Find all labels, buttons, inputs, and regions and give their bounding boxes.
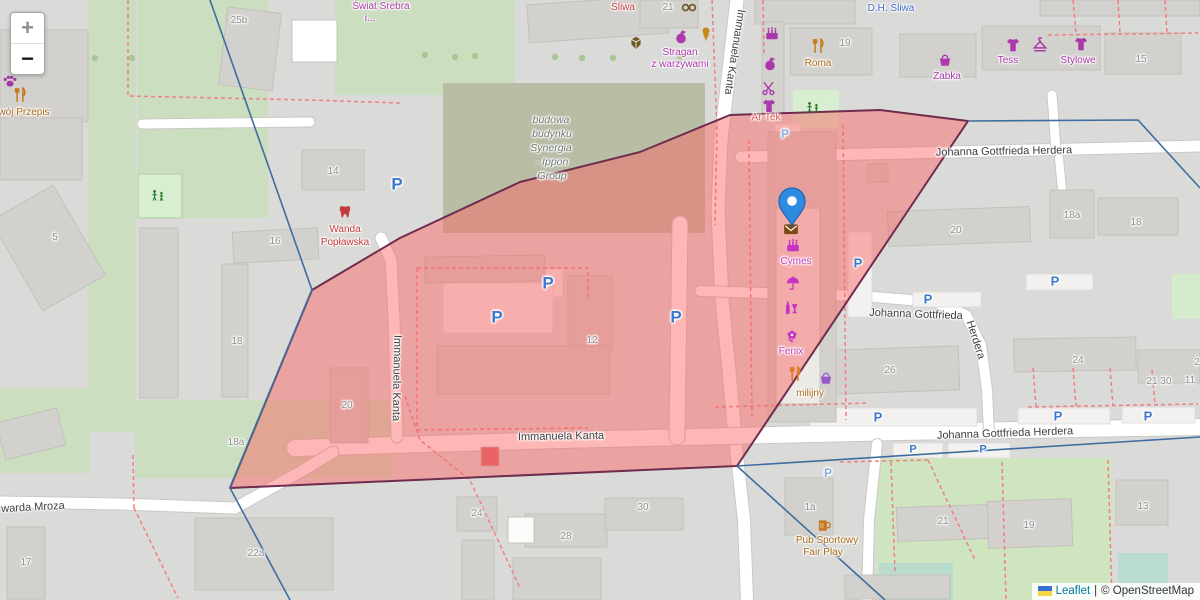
attribution-separator: | (1094, 585, 1097, 597)
tree (422, 52, 428, 58)
tree (472, 53, 478, 59)
road (142, 122, 310, 124)
parking-area (913, 292, 981, 307)
building (1040, 0, 1200, 16)
openstreetmap-link[interactable]: © OpenStreetMap (1101, 585, 1194, 597)
building (755, 0, 855, 24)
leaflet-map[interactable]: Immanuela KantaImmanuela KantaImmanuela … (0, 0, 1200, 600)
building (785, 478, 833, 535)
tree (677, 54, 683, 60)
tree (552, 54, 558, 60)
tree (129, 55, 135, 61)
building (222, 264, 248, 397)
building (7, 527, 45, 599)
building (1050, 190, 1094, 238)
zoom-control: + − (10, 12, 45, 75)
tree (610, 55, 616, 61)
building (508, 517, 534, 543)
building (195, 518, 333, 590)
building (605, 498, 683, 530)
base-map-tiles (0, 0, 1200, 600)
building (1105, 33, 1181, 74)
building (762, 22, 784, 114)
building (896, 504, 989, 541)
building (232, 228, 319, 263)
tree (92, 55, 98, 61)
parking-area (1018, 408, 1110, 424)
ukraine-flag-icon (1038, 586, 1052, 596)
attribution: Leaflet | © OpenStreetMap (1032, 583, 1200, 600)
building (462, 540, 494, 600)
parking-area (1122, 407, 1195, 423)
building (302, 150, 364, 190)
parking-area (1026, 274, 1093, 290)
building (900, 34, 976, 77)
road (1052, 95, 1056, 150)
building (1014, 337, 1137, 372)
tree (452, 54, 458, 60)
building (1116, 480, 1168, 525)
green-area (335, 0, 515, 95)
building (0, 118, 82, 180)
leaflet-link[interactable]: Leaflet (1056, 585, 1091, 597)
green-area (88, 0, 136, 432)
building (1098, 198, 1178, 235)
zoom-in-button[interactable]: + (11, 13, 44, 44)
building (887, 207, 1030, 247)
map-marker[interactable] (777, 186, 807, 233)
building (513, 558, 601, 600)
green-area (138, 174, 182, 218)
green-area (1172, 274, 1200, 319)
building (987, 499, 1073, 549)
zoom-out-button[interactable]: − (11, 44, 44, 74)
building (1138, 350, 1200, 383)
building (832, 346, 959, 394)
tree (579, 55, 585, 61)
building (982, 26, 1100, 70)
building (140, 228, 178, 398)
building (525, 514, 607, 547)
building (457, 497, 497, 531)
building (790, 28, 872, 75)
building (292, 20, 337, 62)
building (640, 0, 698, 28)
